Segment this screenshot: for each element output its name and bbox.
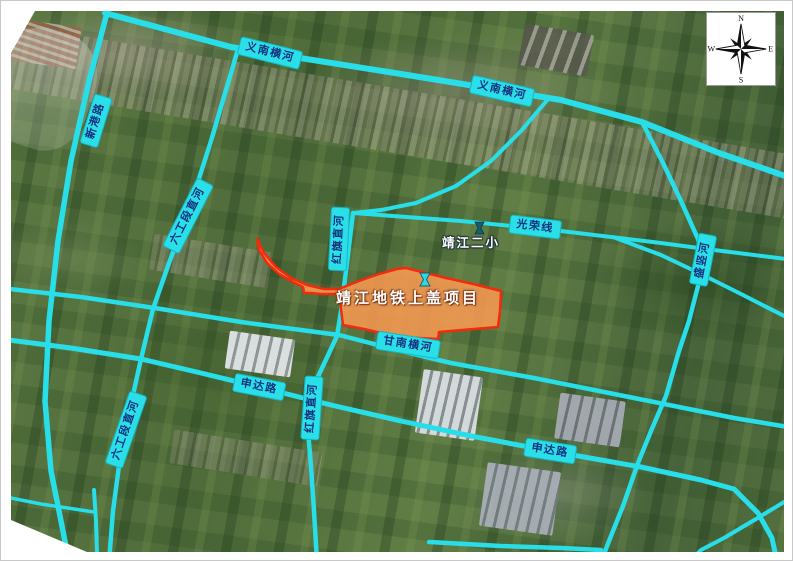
line-shengshu-he bbox=[601, 122, 704, 552]
line-bottom-segment bbox=[429, 542, 601, 550]
metro-project-icon bbox=[419, 272, 431, 287]
map-canvas[interactable]: 义南横河 义南横河 新港路 六工段直河 红旗直河 光荣线 甘南横河 申达路 申达… bbox=[11, 11, 784, 552]
label-hongqi-zhihe-upper: 红旗直河 bbox=[328, 207, 350, 272]
compass-west-letter: W bbox=[707, 45, 715, 54]
line-guangrong bbox=[353, 213, 784, 260]
line-cross-bottom-right bbox=[689, 496, 784, 552]
compass-north-letter: N bbox=[738, 14, 744, 23]
compass-star bbox=[716, 24, 766, 74]
map-frame: 义南横河 义南横河 新港路 六工段直河 红旗直河 光荣线 甘南横河 申达路 申达… bbox=[11, 11, 784, 552]
page: 义南横河 义南横河 新港路 六工段直河 红旗直河 光荣线 甘南横河 申达路 申达… bbox=[0, 0, 793, 561]
project-area-label: 靖江地铁上盖项目 bbox=[333, 287, 483, 308]
line-yinan-branch bbox=[353, 98, 549, 213]
compass-rose: N E S W bbox=[706, 12, 776, 86]
line-bottom-left-stub bbox=[94, 490, 97, 552]
compass-east-letter: E bbox=[768, 45, 773, 54]
school-label: 靖江二小 bbox=[442, 232, 500, 251]
map-overlay-graphics bbox=[11, 11, 784, 552]
compass-south-letter: S bbox=[739, 75, 744, 84]
line-bottom-left-diagonal bbox=[11, 496, 94, 512]
line-liugongduan-zhihe bbox=[109, 49, 238, 552]
